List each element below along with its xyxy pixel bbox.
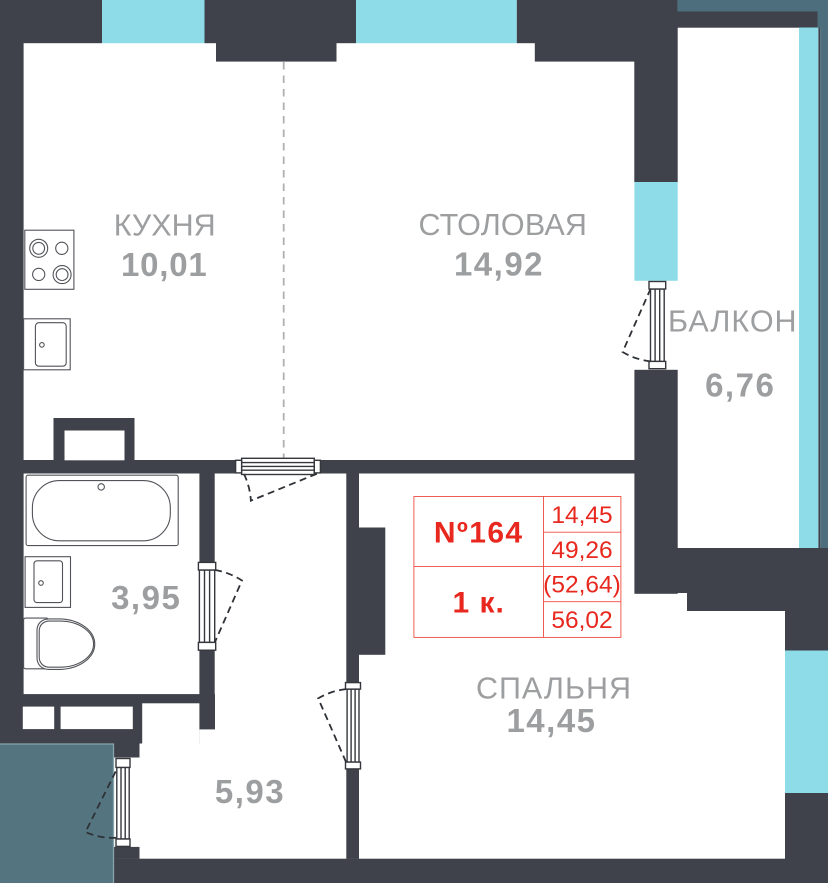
svg-text:КУХНЯ: КУХНЯ	[114, 209, 216, 243]
svg-text:Nº164: Nº164	[434, 516, 524, 549]
svg-text:10,01: 10,01	[121, 246, 208, 283]
svg-text:56,02: 56,02	[551, 607, 612, 634]
svg-text:6,76: 6,76	[705, 367, 775, 404]
svg-text:49,26: 49,26	[551, 537, 612, 564]
svg-text:(52,64): (52,64)	[543, 572, 621, 599]
svg-text:14,45: 14,45	[551, 502, 612, 529]
svg-text:3,95: 3,95	[111, 579, 181, 616]
svg-text:СПАЛЬНЯ: СПАЛЬНЯ	[476, 671, 632, 705]
svg-text:СТОЛОВАЯ: СТОЛОВАЯ	[418, 208, 587, 242]
svg-text:14,45: 14,45	[506, 702, 596, 739]
svg-text:14,92: 14,92	[454, 246, 544, 283]
svg-text:1 к.: 1 к.	[453, 586, 505, 619]
svg-text:5,93: 5,93	[215, 773, 285, 810]
svg-text:БАЛКОН: БАЛКОН	[668, 305, 798, 339]
